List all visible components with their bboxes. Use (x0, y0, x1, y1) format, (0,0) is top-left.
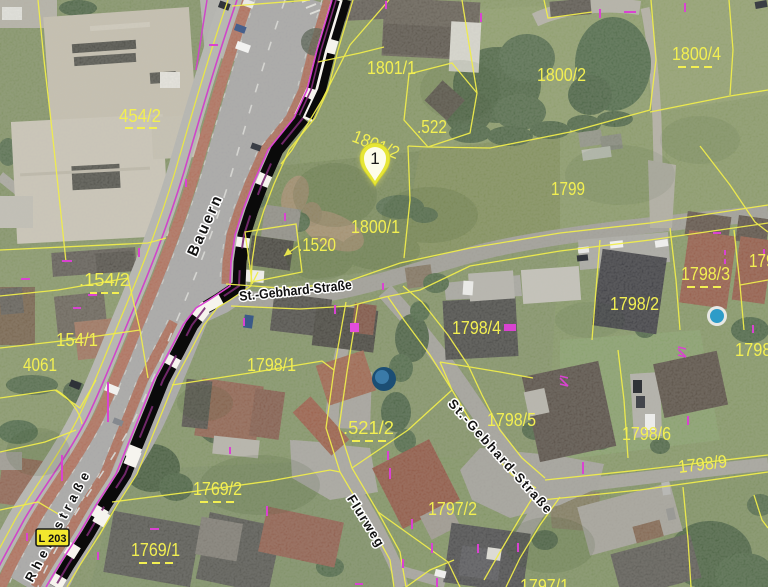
svg-text:.522: .522 (417, 117, 447, 137)
svg-text:1800/1: 1800/1 (351, 217, 400, 237)
svg-text:1798/2: 1798/2 (610, 294, 659, 314)
svg-text:154/1: 154/1 (56, 330, 98, 350)
svg-text:1800/4: 1800/4 (672, 44, 721, 64)
svg-text:1798/5: 1798/5 (487, 410, 536, 430)
svg-text:1797/2: 1797/2 (428, 499, 477, 519)
svg-text:1798/4: 1798/4 (452, 318, 501, 338)
svg-text:1798/6: 1798/6 (622, 424, 671, 444)
svg-text:1798/3: 1798/3 (681, 264, 730, 284)
svg-text:454/2: 454/2 (119, 106, 161, 126)
svg-text:1769/2: 1769/2 (193, 479, 242, 499)
svg-text:.521/2: .521/2 (343, 418, 394, 438)
svg-text:1799: 1799 (551, 179, 585, 199)
svg-text:1798: 1798 (749, 251, 768, 271)
svg-text:1800/2: 1800/2 (537, 65, 586, 85)
svg-text:.154/2: .154/2 (79, 270, 130, 290)
svg-text:1801/1: 1801/1 (367, 58, 416, 78)
svg-text:1769/1: 1769/1 (131, 540, 180, 560)
svg-text:1: 1 (370, 149, 379, 168)
svg-text:1798/: 1798/ (735, 340, 768, 360)
svg-text:.1520: .1520 (298, 235, 336, 255)
svg-text:4061: 4061 (23, 355, 57, 375)
svg-text:1798/1: 1798/1 (247, 355, 296, 375)
svg-text:1797/1: 1797/1 (520, 576, 569, 587)
svg-text:L 203: L 203 (39, 533, 67, 545)
